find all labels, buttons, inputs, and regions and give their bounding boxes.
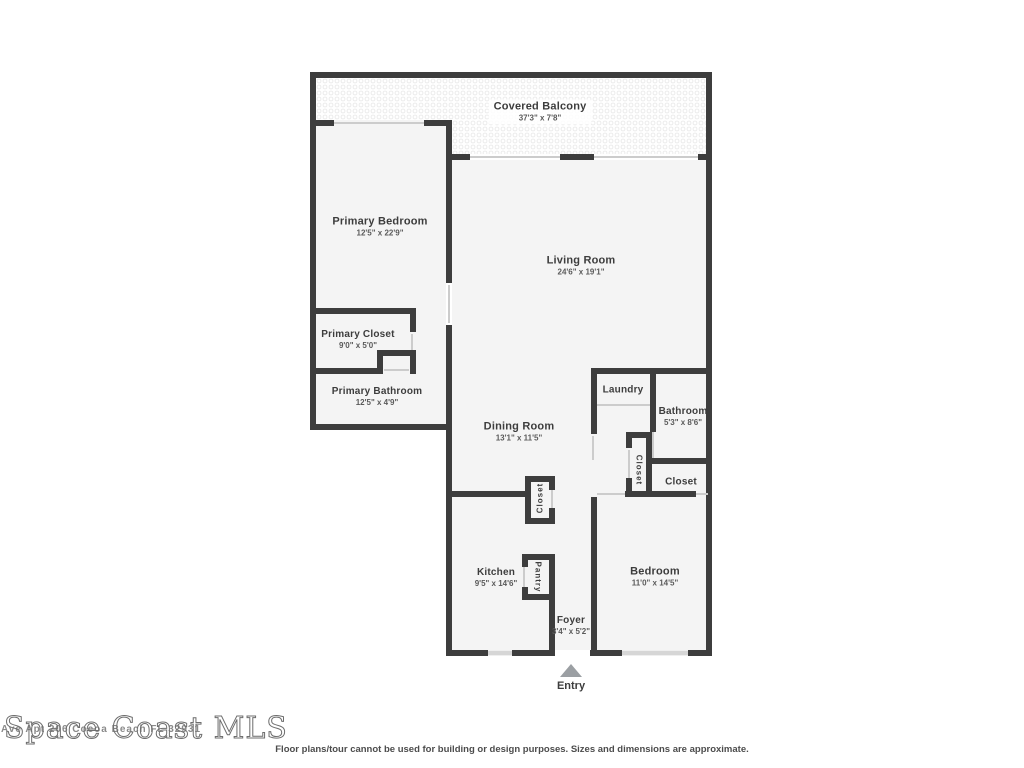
door-line — [628, 450, 630, 478]
wall — [512, 650, 555, 656]
room-label-kitchen: Kitchen 9'5" x 14'6" — [475, 567, 518, 589]
wall — [549, 508, 555, 518]
wall — [650, 374, 656, 432]
room-name: Primary Bedroom — [332, 215, 427, 228]
room-label-laundry: Laundry — [603, 384, 644, 396]
window — [488, 650, 512, 656]
room-label-primary-bedroom: Primary Bedroom 12'5" x 22'9" — [332, 215, 427, 238]
wall — [591, 497, 597, 656]
wall — [310, 368, 377, 374]
room-dims: 24'6" x 19'1" — [547, 267, 616, 277]
wall — [310, 424, 452, 430]
room-label-bedroom: Bedroom 11'0" x 14'5" — [630, 565, 680, 588]
wall — [698, 154, 712, 160]
slider-line — [470, 156, 560, 158]
entry-label: Entry — [557, 680, 585, 692]
room-dims: 12'5" x 22'9" — [332, 228, 427, 238]
wall — [446, 491, 526, 497]
door-line — [597, 404, 650, 406]
room-label-pantry: Pantry — [534, 562, 543, 593]
wall — [688, 650, 712, 656]
room-dims: 13'1" x 11'5" — [484, 433, 555, 443]
door-line — [523, 567, 525, 587]
room-name: Living Room — [547, 254, 616, 267]
room-label-bedroom-closet: Closet — [665, 476, 697, 488]
room-name: Bedroom — [630, 565, 680, 578]
slider-line — [594, 156, 698, 158]
room-name: Kitchen — [475, 567, 518, 579]
room-label-primary-bathroom: Primary Bathroom 12'5" x 4'9" — [332, 386, 422, 408]
room-name: Primary Closet — [321, 329, 394, 341]
wall — [522, 560, 528, 567]
slider-line — [334, 122, 424, 124]
wall — [377, 356, 383, 374]
door-line — [696, 493, 708, 495]
room-dims: 9'0" x 5'0" — [321, 341, 394, 351]
wall — [522, 587, 528, 594]
wall — [549, 482, 555, 490]
room-label-dining-closet: Closet — [536, 483, 545, 513]
room-name: Covered Balcony — [494, 100, 587, 113]
entry-arrow-icon — [560, 664, 582, 677]
door-line — [448, 285, 450, 323]
door-line — [597, 493, 625, 495]
window — [622, 650, 688, 656]
room-dims: 5'3" x 8'6" — [659, 418, 708, 428]
door-line — [384, 369, 409, 371]
door-line — [652, 432, 654, 458]
room-dims: 37'3" x 7'8" — [494, 113, 587, 123]
wall — [590, 650, 622, 656]
watermark: Ave Apt 206 Cocoa Beach FL 32931 Space C… — [0, 714, 260, 758]
room-label-dining-room: Dining Room 13'1" x 11'5" — [484, 420, 555, 443]
room-label-foyer: Foyer 3'4" x 5'2" — [552, 615, 590, 637]
wall — [310, 308, 416, 314]
room-dims: 11'0" x 14'5" — [630, 578, 680, 588]
room-dims: 3'4" x 5'2" — [552, 627, 590, 637]
wall — [626, 438, 632, 448]
disclaimer-text: Floor plans/tour cannot be used for buil… — [275, 744, 749, 755]
wall — [410, 356, 416, 374]
wall — [310, 72, 712, 78]
wall — [446, 650, 488, 656]
wall — [310, 120, 334, 126]
room-dims: 12'5" x 4'9" — [332, 398, 422, 408]
wall — [452, 154, 470, 160]
room-name: Laundry — [603, 384, 644, 396]
floor-plan: Covered Balcony 37'3" x 7'8" Primary Bed… — [0, 0, 1024, 768]
room-name: Closet — [665, 476, 697, 488]
wall — [410, 314, 416, 332]
room-name: Primary Bathroom — [332, 386, 422, 398]
wall — [446, 120, 452, 283]
wall — [650, 458, 712, 464]
door-line — [411, 334, 413, 350]
balcony-hatch-right — [452, 120, 706, 154]
door-line — [592, 436, 594, 460]
room-name: Foyer — [552, 615, 590, 627]
room-name: Bathroom — [659, 406, 708, 418]
room-label-living-room: Living Room 24'6" x 19'1" — [547, 254, 616, 277]
wall — [625, 491, 696, 497]
room-label-bathroom: Bathroom 5'3" x 8'6" — [659, 406, 708, 428]
floor-primary-wing — [316, 120, 446, 424]
room-name: Dining Room — [484, 420, 555, 433]
wall — [424, 120, 452, 126]
room-label-hall-closet: Closet — [635, 455, 644, 485]
room-label-covered-balcony: Covered Balcony 37'3" x 7'8" — [489, 99, 592, 124]
room-dims: 9'5" x 14'6" — [475, 579, 518, 589]
wall — [525, 518, 555, 524]
door-line — [551, 490, 553, 508]
watermark-logo: Space Coast MLS — [4, 711, 288, 747]
room-label-primary-closet: Primary Closet 9'0" x 5'0" — [321, 329, 394, 351]
wall — [560, 154, 594, 160]
